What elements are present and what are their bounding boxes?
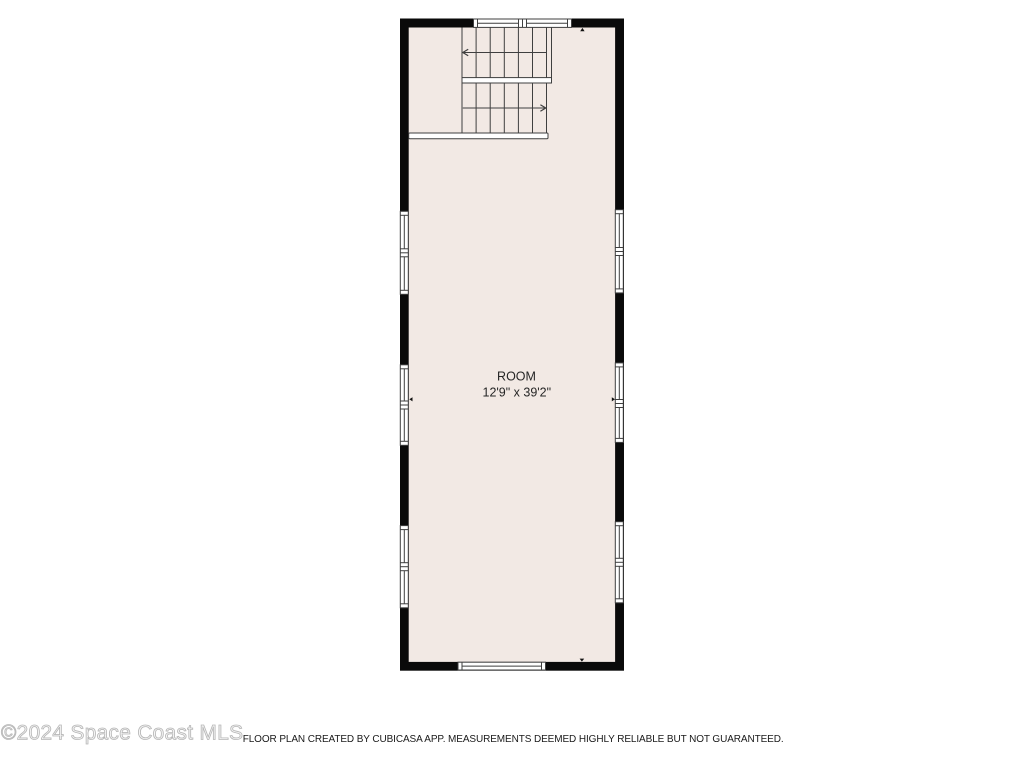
svg-text:ROOM: ROOM bbox=[497, 370, 536, 384]
svg-text:12'9" x 39'2": 12'9" x 39'2" bbox=[483, 386, 552, 400]
svg-text:FLOOR PLAN CREATED BY CUBICASA: FLOOR PLAN CREATED BY CUBICASA APP. MEAS… bbox=[243, 734, 784, 745]
svg-text:©2024 Space Coast MLS: ©2024 Space Coast MLS bbox=[1, 722, 243, 745]
